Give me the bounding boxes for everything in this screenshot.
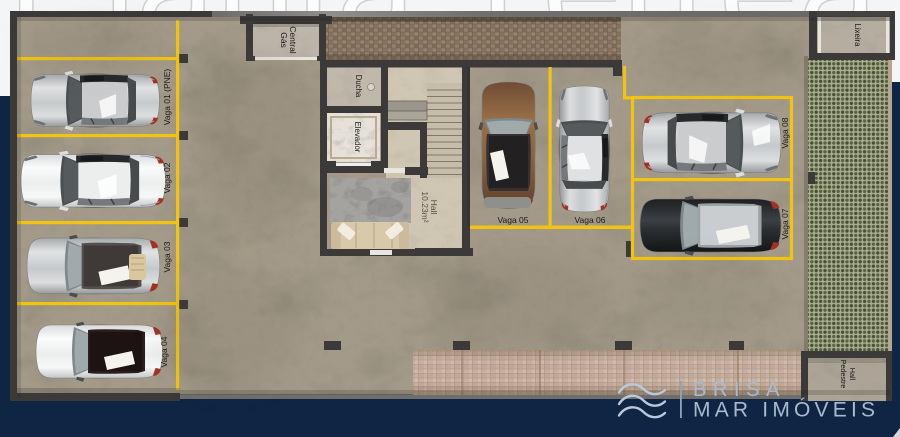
svg-text:Vaga 03: Vaga 03 bbox=[162, 241, 172, 272]
svg-text:MAR IMÓVEIS: MAR IMÓVEIS bbox=[693, 399, 879, 422]
svg-text:Vaga 06: Vaga 06 bbox=[574, 215, 605, 225]
svg-text:Vaga 02: Vaga 02 bbox=[162, 162, 172, 193]
svg-text:Lixeira: Lixeira bbox=[853, 24, 862, 48]
svg-text:Elevador: Elevador bbox=[353, 122, 362, 153]
svg-text:Vaga 08: Vaga 08 bbox=[780, 117, 790, 148]
svg-text:Ducha: Ducha bbox=[354, 75, 363, 98]
svg-text:Vaga 04: Vaga 04 bbox=[159, 336, 169, 367]
svg-text:Vaga 05: Vaga 05 bbox=[497, 215, 528, 225]
svg-text:Vaga 01 (PNE): Vaga 01 (PNE) bbox=[162, 69, 172, 126]
svg-text:Vaga 07: Vaga 07 bbox=[780, 208, 790, 239]
